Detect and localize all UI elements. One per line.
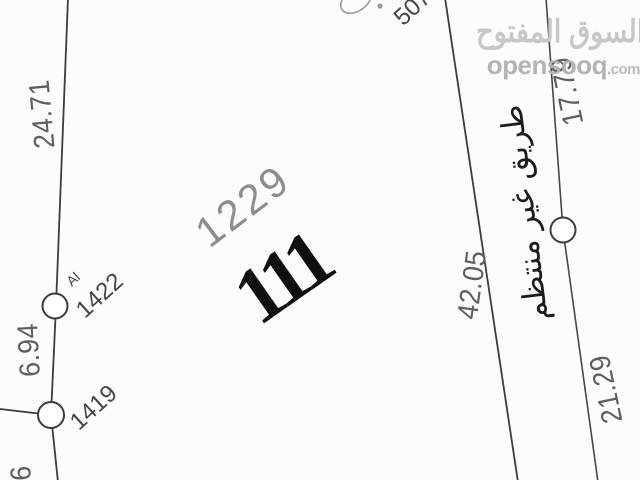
top-faint-dot [377, 3, 382, 8]
survey-plan-image: 24.71 6.94 6 42.05 17.79 21.29 507 Al 14… [0, 0, 640, 480]
top-faint-survey-circle [336, 0, 376, 19]
watermark-arabic-logo: السوق المفتوح [476, 16, 640, 47]
watermark-latin-logo: opensooq.com [487, 52, 640, 78]
dimension-left-bottom-partial: 6 [7, 465, 37, 480]
watermark-latin-text: opensooq [487, 50, 607, 80]
dimension-left-upper: 24.71 [26, 78, 61, 149]
dimension-left-middle: 6.94 [14, 322, 46, 377]
survey-point-circle-road [551, 218, 576, 243]
watermark-domain-suffix: .com [607, 61, 640, 78]
survey-point-circle-1419 [38, 402, 64, 428]
survey-point-circle-1422 [43, 294, 68, 319]
